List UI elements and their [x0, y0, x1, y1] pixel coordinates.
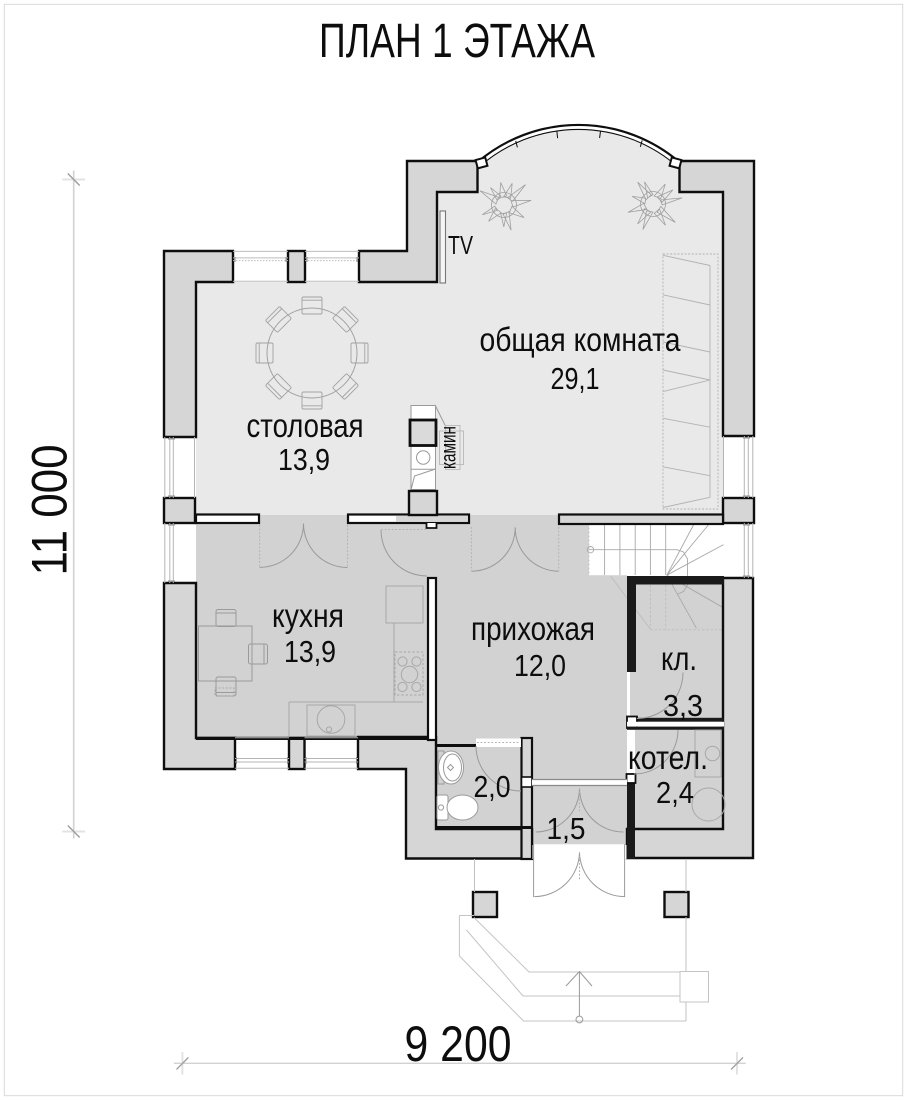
svg-text:12,0: 12,0	[514, 648, 566, 683]
svg-text:13,9: 13,9	[278, 442, 330, 477]
svg-text:13,9: 13,9	[284, 634, 336, 669]
svg-text:9 200: 9 200	[405, 1016, 512, 1072]
svg-text:столовая: столовая	[247, 407, 364, 444]
svg-text:общая комната: общая комната	[480, 321, 682, 358]
svg-text:ПЛАН 1 ЭТАЖА: ПЛАН 1 ЭТАЖА	[319, 15, 595, 68]
svg-text:котел.: котел.	[628, 739, 708, 776]
svg-text:TV: TV	[448, 230, 473, 260]
svg-text:29,1: 29,1	[551, 361, 600, 396]
svg-text:камин: камин	[438, 426, 461, 469]
svg-text:кухня: кухня	[272, 597, 344, 634]
svg-text:11 000: 11 000	[22, 445, 78, 576]
svg-text:2,0: 2,0	[474, 769, 511, 804]
svg-text:2,4: 2,4	[656, 775, 694, 810]
svg-text:прихожая: прихожая	[471, 610, 595, 647]
svg-text:3,3: 3,3	[663, 688, 703, 723]
svg-text:1,5: 1,5	[547, 811, 586, 846]
svg-text:кл.: кл.	[661, 640, 697, 677]
